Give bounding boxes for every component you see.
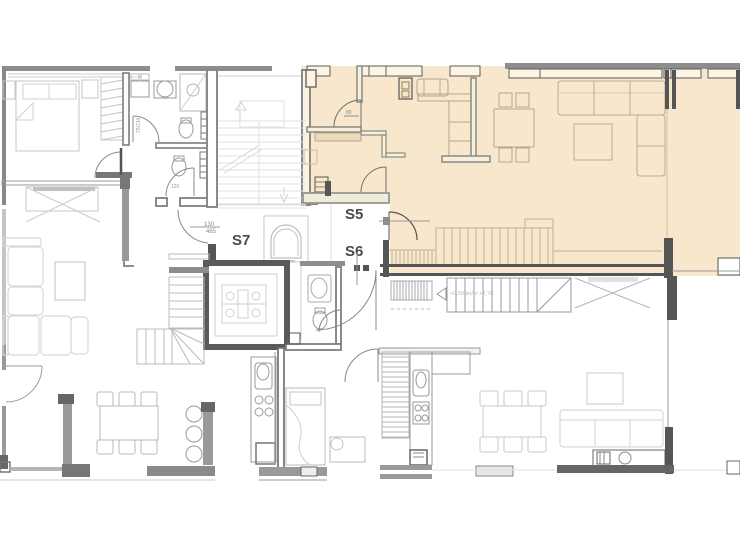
svg-text:465: 465 bbox=[206, 229, 217, 235]
svg-text:130: 130 bbox=[204, 222, 215, 228]
svg-text:S5: S5 bbox=[345, 206, 363, 223]
svg-text:75/210: 75/210 bbox=[136, 117, 142, 133]
svg-text:S6: S6 bbox=[345, 243, 363, 260]
svg-text:80: 80 bbox=[346, 110, 352, 116]
svg-text:120: 120 bbox=[171, 184, 180, 190]
svg-text:S7: S7 bbox=[232, 232, 250, 249]
